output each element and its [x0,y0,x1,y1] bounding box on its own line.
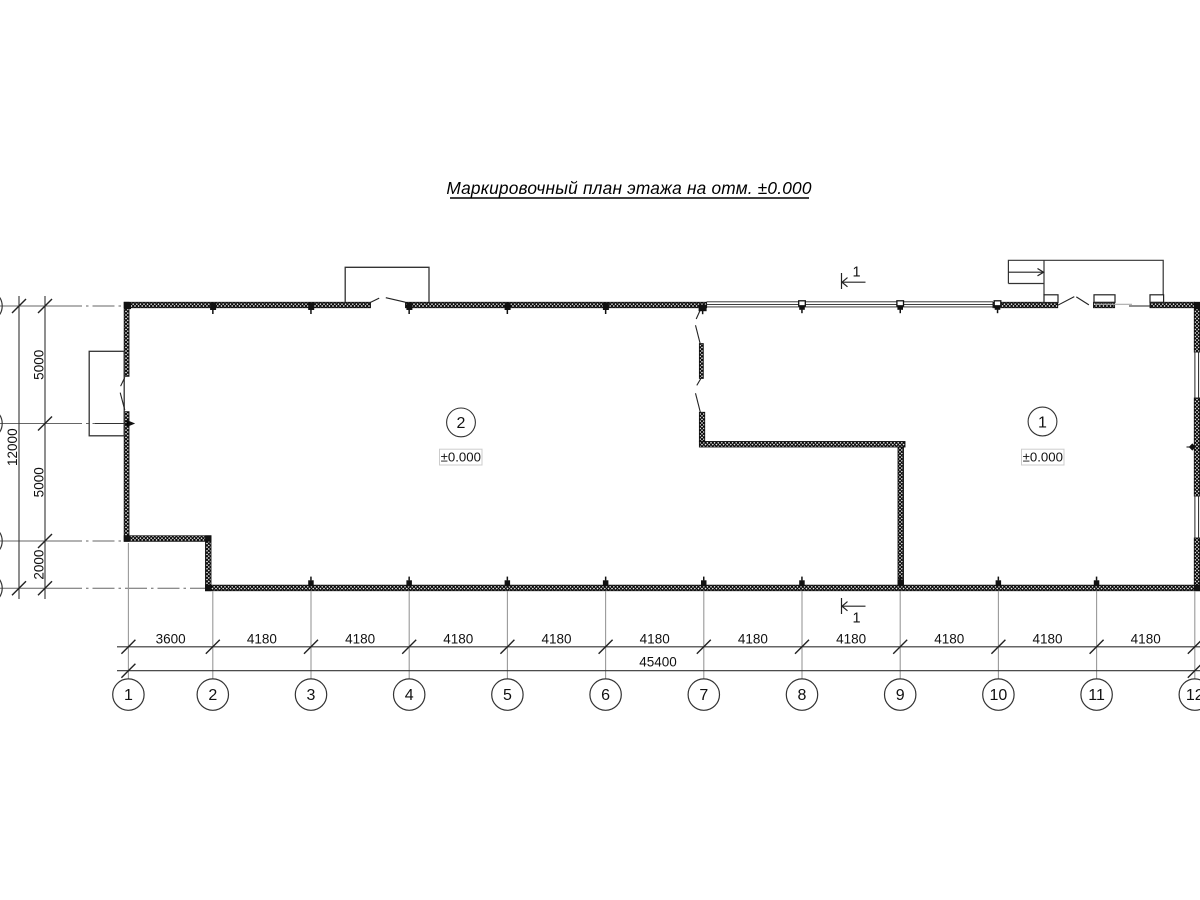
svg-text:4180: 4180 [836,632,866,647]
svg-text:4180: 4180 [247,632,277,647]
svg-text:12: 12 [1186,687,1200,704]
svg-text:4180: 4180 [345,632,375,647]
svg-text:Маркировочный план этажа на от: Маркировочный план этажа на отм. ±0.000 [446,178,812,198]
svg-text:2000: 2000 [32,550,47,580]
svg-text:1: 1 [124,687,133,704]
svg-text:1: 1 [852,611,860,627]
svg-text:4180: 4180 [1032,632,1062,647]
svg-text:12000: 12000 [5,428,20,466]
svg-text:9: 9 [896,687,905,704]
svg-text:11: 11 [1088,687,1105,704]
svg-text:2: 2 [457,415,466,432]
svg-text:2: 2 [208,687,217,704]
svg-text:4180: 4180 [443,632,473,647]
svg-text:1: 1 [1038,414,1047,431]
svg-text:4180: 4180 [640,632,670,647]
svg-text:6: 6 [601,687,610,704]
svg-text:1: 1 [852,265,860,281]
svg-text:3: 3 [307,687,316,704]
svg-text:10: 10 [990,687,1008,704]
svg-text:4180: 4180 [738,632,768,647]
svg-text:5: 5 [503,687,512,704]
svg-text:4: 4 [405,687,414,704]
svg-text:±0.000: ±0.000 [1023,450,1063,465]
svg-text:45400: 45400 [639,655,677,670]
svg-text:4180: 4180 [934,632,964,647]
svg-text:3600: 3600 [156,632,186,647]
svg-text:4180: 4180 [1131,632,1161,647]
svg-text:5000: 5000 [32,350,47,380]
svg-text:5000: 5000 [32,467,47,497]
svg-text:±0.000: ±0.000 [441,450,481,465]
svg-text:4180: 4180 [541,632,571,647]
svg-text:8: 8 [798,687,807,704]
svg-text:7: 7 [699,687,708,704]
